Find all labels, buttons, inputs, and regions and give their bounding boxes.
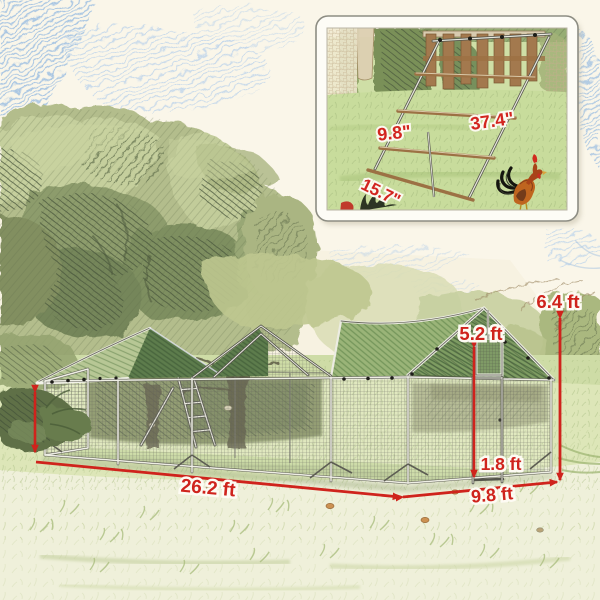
svg-text:1.8 ft: 1.8 ft <box>481 454 522 474</box>
svg-text:9.8": 9.8" <box>376 121 411 144</box>
svg-text:6.4 ft: 6.4 ft <box>536 291 579 312</box>
svg-text:5.2 ft: 5.2 ft <box>459 323 502 344</box>
svg-text:9.8 ft: 9.8 ft <box>470 483 514 507</box>
